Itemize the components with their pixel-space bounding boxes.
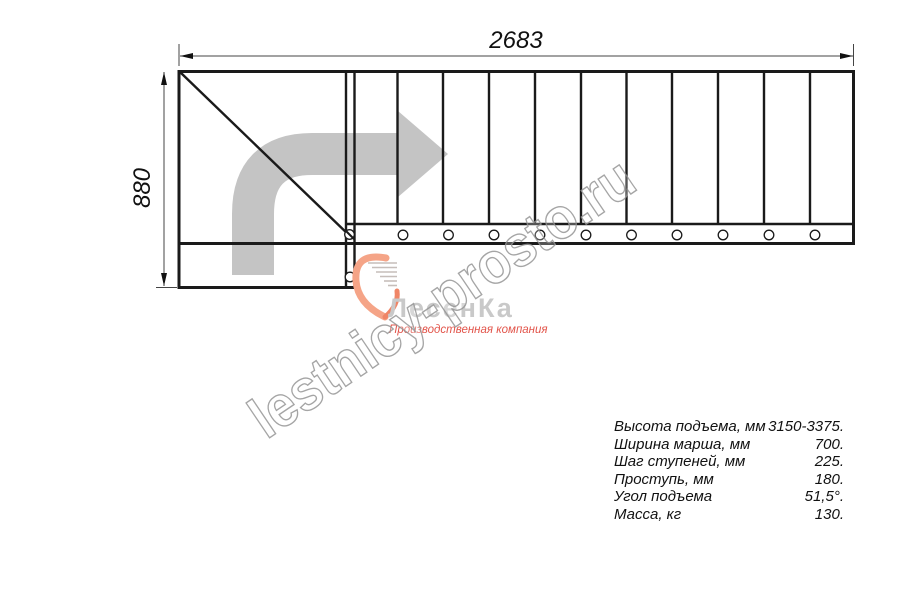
- spec-row-angle: Угол подъема 51,5°.: [614, 488, 844, 506]
- spec-label: Шаг ступеней, мм: [614, 453, 745, 471]
- spec-value: 180.: [815, 471, 844, 489]
- company-logo-name: ЛесенКа: [388, 293, 558, 324]
- dimension-height-label: 880: [129, 167, 156, 208]
- spec-row-step-pitch: Шаг ступеней, мм 225.: [614, 453, 844, 471]
- bolt-holes: [345, 230, 820, 282]
- spec-value: 3150-3375.: [768, 418, 844, 436]
- spec-value: 700.: [815, 436, 844, 454]
- spec-label: Проступь, мм: [614, 471, 714, 489]
- spec-value: 130.: [815, 506, 844, 524]
- spec-label: Масса, кг: [614, 506, 681, 524]
- company-logo-tagline: Производственная компания: [389, 324, 559, 336]
- dimension-width-label: 2683: [488, 27, 543, 54]
- spec-value: 225.: [815, 453, 844, 471]
- specs-table: Высота подъема, мм 3150-3375. Ширина мар…: [614, 418, 844, 523]
- spec-label: Угол подъема: [614, 488, 712, 506]
- spec-label: Высота подъема, мм: [614, 418, 766, 436]
- spec-label: Ширина марша, мм: [614, 436, 750, 454]
- page: { "drawing": { "title_dimension_width": …: [0, 0, 900, 600]
- spec-row-mass: Масса, кг 130.: [614, 506, 844, 524]
- spec-row-tread: Проступь, мм 180.: [614, 471, 844, 489]
- spec-row-flight-width: Ширина марша, мм 700.: [614, 436, 844, 454]
- spec-value: 51,5°.: [805, 488, 844, 506]
- spec-row-height: Высота подъема, мм 3150-3375.: [614, 418, 844, 436]
